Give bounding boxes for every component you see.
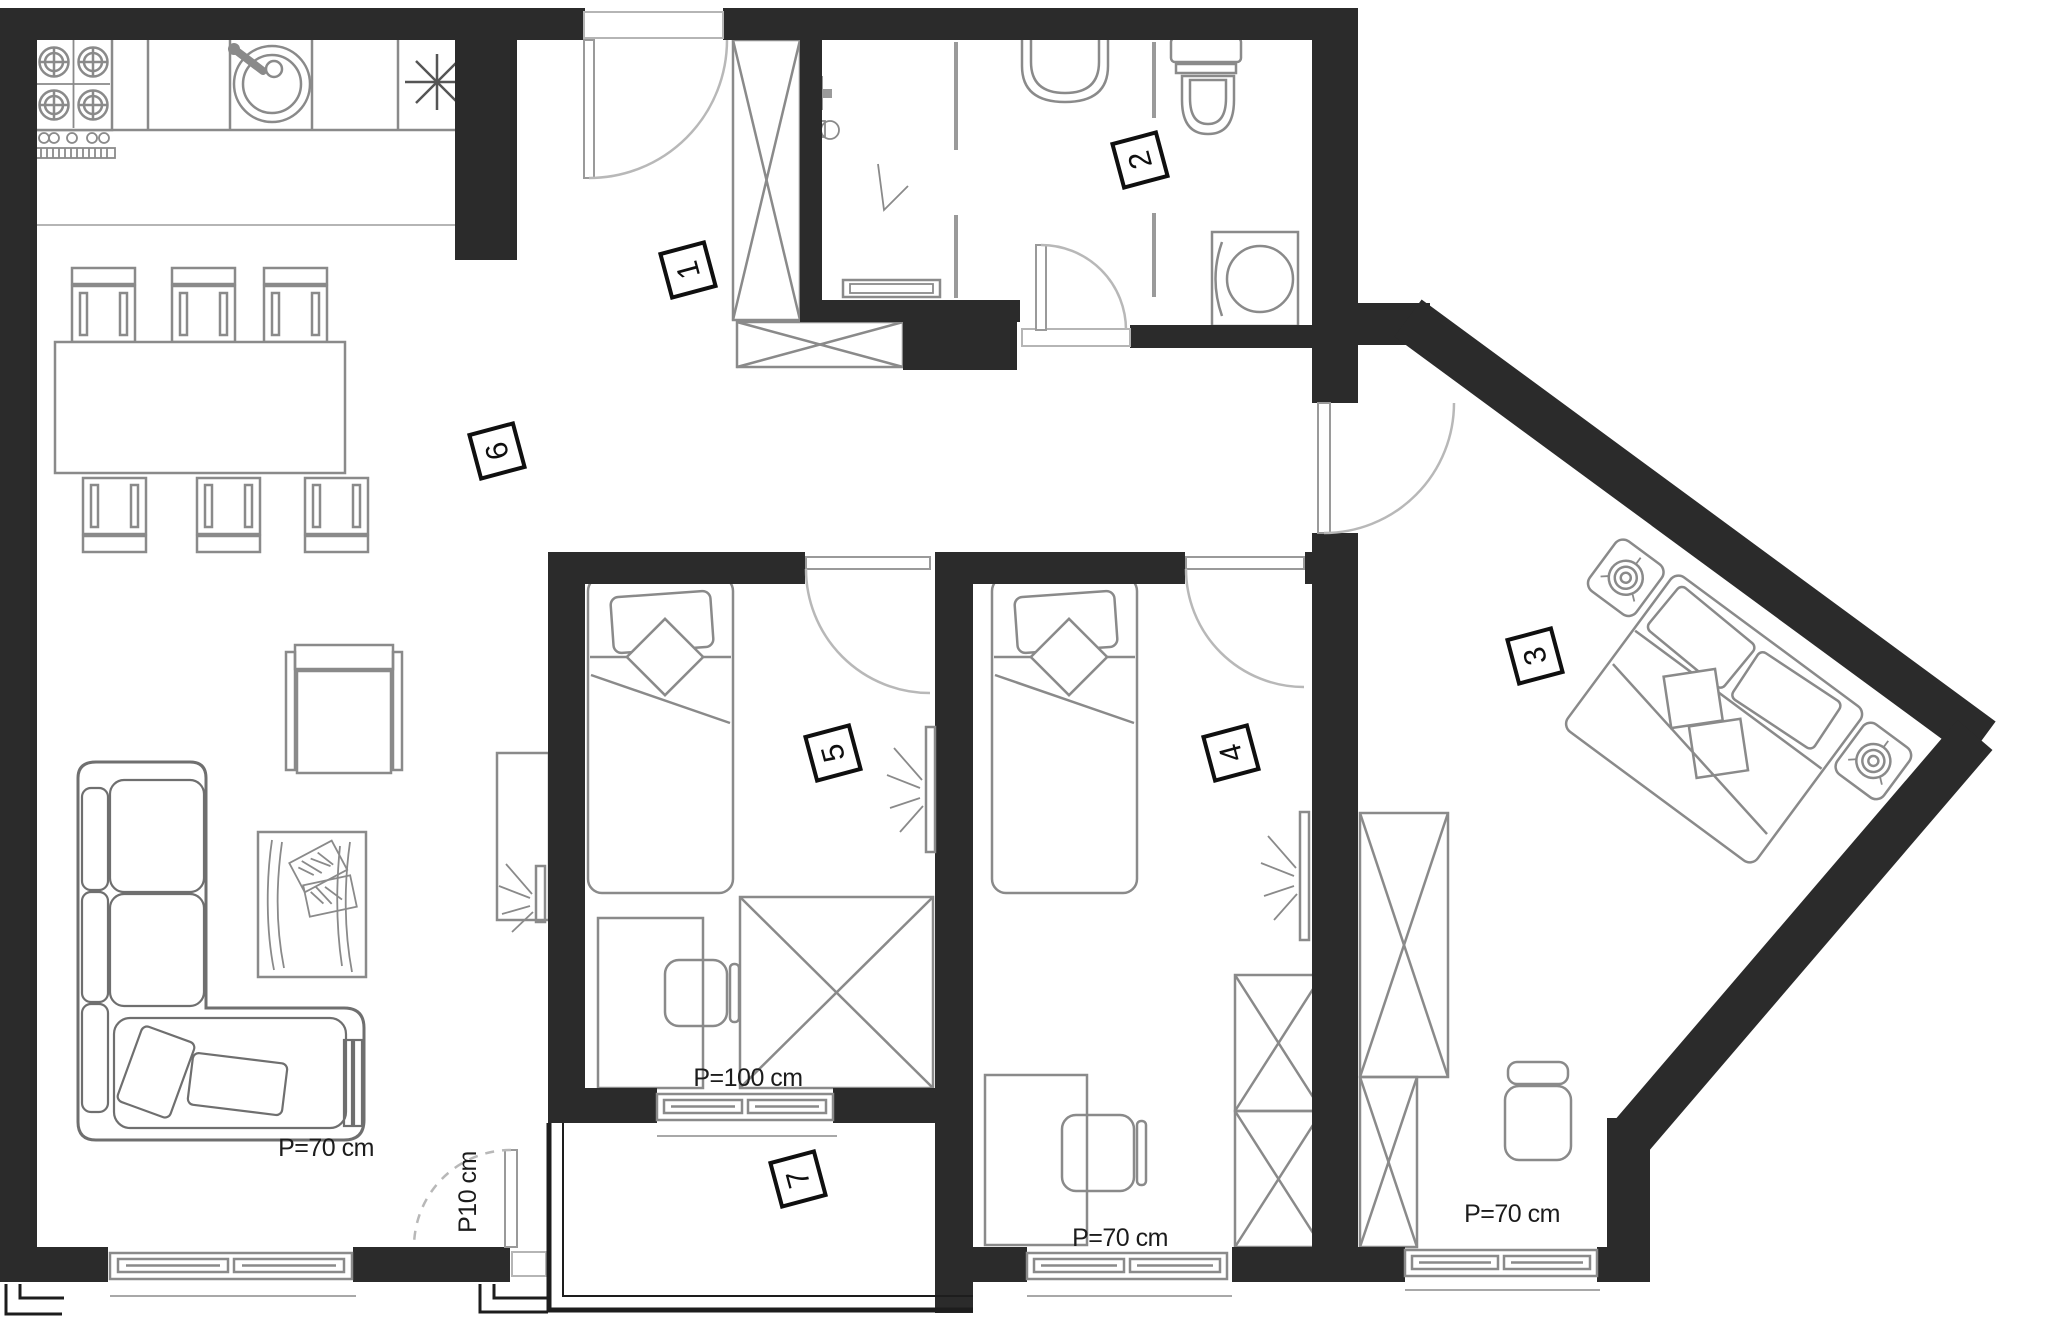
- dining-table: [55, 268, 368, 552]
- stove-icon: [35, 38, 115, 158]
- desk: [985, 1075, 1087, 1245]
- chair: [172, 268, 235, 342]
- shower-icon: [806, 76, 940, 297]
- dim-balcony-door: P10 cm: [454, 1151, 482, 1233]
- magazine: [303, 875, 357, 916]
- bedroom5-door-swing: [806, 557, 930, 693]
- dim-room5-window: P=100 cm: [693, 1064, 802, 1092]
- window: [657, 1094, 833, 1120]
- sofa: [78, 762, 364, 1140]
- bathroom-door-swing: [1022, 245, 1130, 346]
- wardrobe-icon: [1235, 975, 1322, 1247]
- chair: [72, 268, 135, 342]
- dim-living-window: P=70 cm: [278, 1134, 374, 1162]
- chair: [83, 478, 146, 552]
- nightstand: [1584, 536, 1668, 620]
- tv-icon: [1261, 812, 1309, 940]
- hall-cabinet-icon: [737, 322, 903, 367]
- sink-icon: [228, 43, 310, 122]
- table-top: [55, 342, 345, 473]
- chair: [197, 478, 260, 552]
- room-number: 1: [668, 257, 707, 283]
- exterior-step-marks: [6, 1284, 548, 1314]
- entry-door-swing: [584, 12, 727, 178]
- room-number: 7: [778, 1166, 817, 1192]
- window: [1405, 1250, 1597, 1276]
- chair: [305, 478, 368, 552]
- floor-plan-drawing: P=70 cm P10 cm P=100 cm P=70 cm P=70 cm: [0, 0, 2054, 1318]
- bidet-icon: [1022, 38, 1108, 102]
- wardrobe-icon: [1360, 813, 1448, 1247]
- window: [110, 1253, 352, 1279]
- washing-machine-icon: [1212, 232, 1298, 326]
- dim-room3-window: P=70 cm: [1464, 1200, 1560, 1228]
- tv-icon: [887, 727, 935, 852]
- bedroom4-door-swing: [1186, 557, 1304, 687]
- wardrobe-icon: [740, 897, 933, 1088]
- bedroom3-door-swing: [1318, 403, 1454, 533]
- hall-wardrobe-icon: [733, 40, 800, 320]
- toilet-icon: [1171, 38, 1241, 134]
- room-number: 4: [1211, 740, 1250, 766]
- bed: [992, 577, 1137, 893]
- rug: [258, 832, 366, 977]
- floor-plan: P=70 cm P10 cm P=100 cm P=70 cm P=70 cm …: [0, 0, 2054, 1318]
- window: [1027, 1253, 1227, 1279]
- armchair: [1505, 1062, 1571, 1160]
- bed: [588, 577, 733, 893]
- tv-icon: [499, 864, 545, 932]
- room-number: 5: [813, 740, 852, 766]
- desk-chair: [1062, 1115, 1146, 1191]
- desk: [598, 918, 703, 1088]
- chair: [264, 268, 327, 342]
- balcony-railing: [549, 1123, 973, 1310]
- armchair: [286, 645, 402, 773]
- room-number: 3: [1515, 643, 1554, 669]
- dim-room4-window: P=70 cm: [1072, 1224, 1168, 1252]
- room-number: 6: [477, 438, 516, 464]
- room-number: 2: [1120, 147, 1159, 173]
